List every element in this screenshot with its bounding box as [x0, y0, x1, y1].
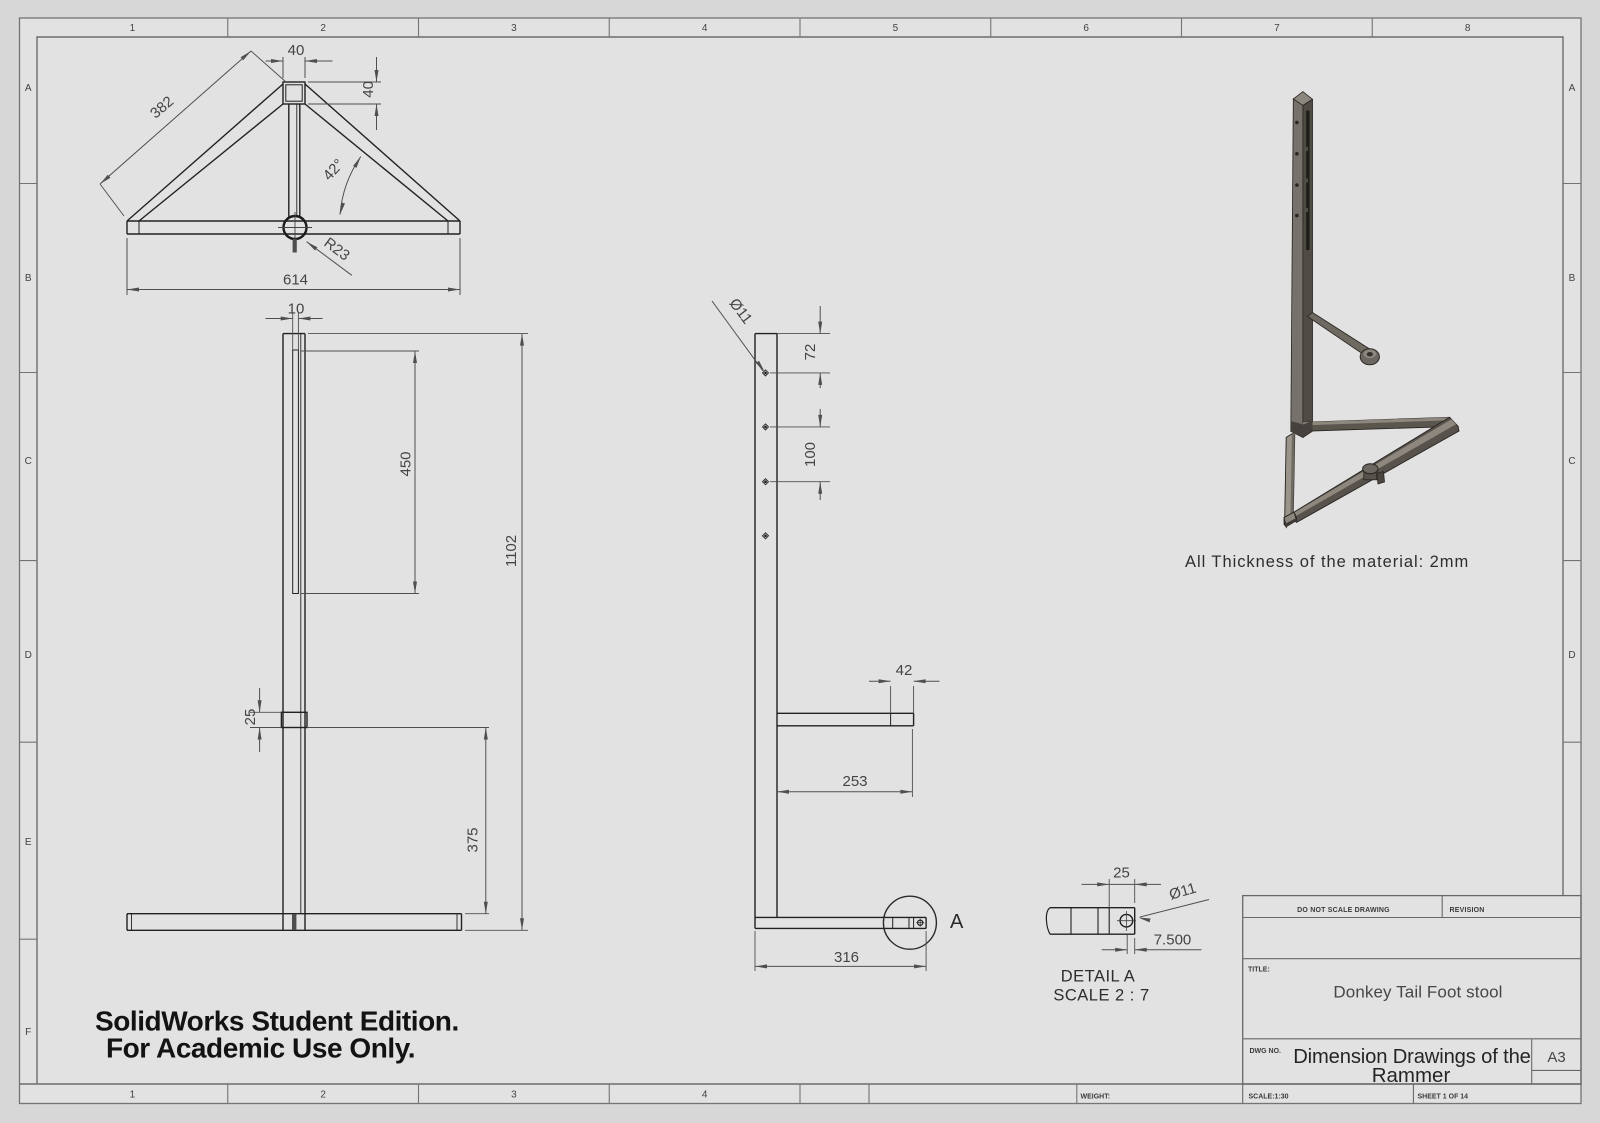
svg-text:40: 40	[360, 81, 377, 98]
svg-text:B: B	[25, 273, 32, 284]
svg-text:DO NOT SCALE DRAWING: DO NOT SCALE DRAWING	[1297, 907, 1390, 914]
svg-text:All Thickness of the material:: All Thickness of the material: 2mm	[1185, 553, 1469, 571]
svg-text:For Academic Use Only.: For Academic Use Only.	[106, 1033, 415, 1064]
svg-text:A: A	[25, 83, 32, 94]
svg-text:SCALE:1:30: SCALE:1:30	[1249, 1094, 1289, 1101]
svg-text:REVISION: REVISION	[1449, 907, 1484, 914]
svg-text:42: 42	[896, 662, 913, 679]
svg-text:DWG NO.: DWG NO.	[1250, 1048, 1282, 1055]
svg-text:1: 1	[130, 1090, 136, 1101]
svg-text:B: B	[1569, 273, 1576, 284]
svg-text:25: 25	[242, 709, 259, 726]
svg-text:2: 2	[320, 1090, 326, 1101]
svg-text:D: D	[25, 650, 32, 661]
svg-text:614: 614	[283, 272, 308, 289]
svg-text:DETAIL A: DETAIL A	[1061, 968, 1136, 986]
svg-text:1102: 1102	[503, 535, 520, 567]
svg-text:F: F	[25, 1027, 31, 1038]
svg-text:6: 6	[1083, 23, 1089, 34]
svg-text:Donkey Tail Foot stool: Donkey Tail Foot stool	[1333, 983, 1502, 1002]
svg-text:A: A	[950, 911, 964, 933]
svg-text:3: 3	[511, 23, 517, 34]
svg-text:WEIGHT:: WEIGHT:	[1081, 1094, 1111, 1101]
svg-text:40: 40	[288, 42, 305, 59]
svg-text:375: 375	[465, 827, 482, 852]
svg-text:3: 3	[511, 1090, 517, 1101]
svg-text:316: 316	[834, 949, 859, 966]
svg-text:253: 253	[842, 773, 867, 790]
svg-text:Rammer: Rammer	[1372, 1064, 1451, 1087]
svg-text:C: C	[1568, 456, 1575, 467]
svg-text:25: 25	[1113, 865, 1130, 882]
svg-text:7: 7	[1274, 23, 1280, 34]
svg-text:10: 10	[288, 301, 305, 318]
svg-text:D: D	[1568, 650, 1575, 661]
svg-text:A3: A3	[1547, 1049, 1565, 1066]
svg-text:4: 4	[702, 1090, 708, 1101]
svg-text:5: 5	[893, 23, 899, 34]
svg-text:8: 8	[1465, 23, 1471, 34]
svg-text:2: 2	[320, 23, 326, 34]
svg-text:SCALE 2 : 7: SCALE 2 : 7	[1053, 987, 1149, 1005]
svg-text:SHEET 1 OF 14: SHEET 1 OF 14	[1418, 1094, 1469, 1101]
svg-text:A: A	[1569, 83, 1576, 94]
svg-text:E: E	[25, 837, 32, 848]
svg-text:C: C	[25, 456, 32, 467]
svg-text:72: 72	[802, 344, 819, 361]
svg-text:100: 100	[802, 442, 819, 467]
svg-text:1: 1	[130, 23, 136, 34]
svg-text:4: 4	[702, 23, 708, 34]
svg-text:TITLE:: TITLE:	[1248, 967, 1270, 974]
svg-text:450: 450	[398, 451, 415, 476]
svg-text:7.500: 7.500	[1154, 932, 1192, 949]
